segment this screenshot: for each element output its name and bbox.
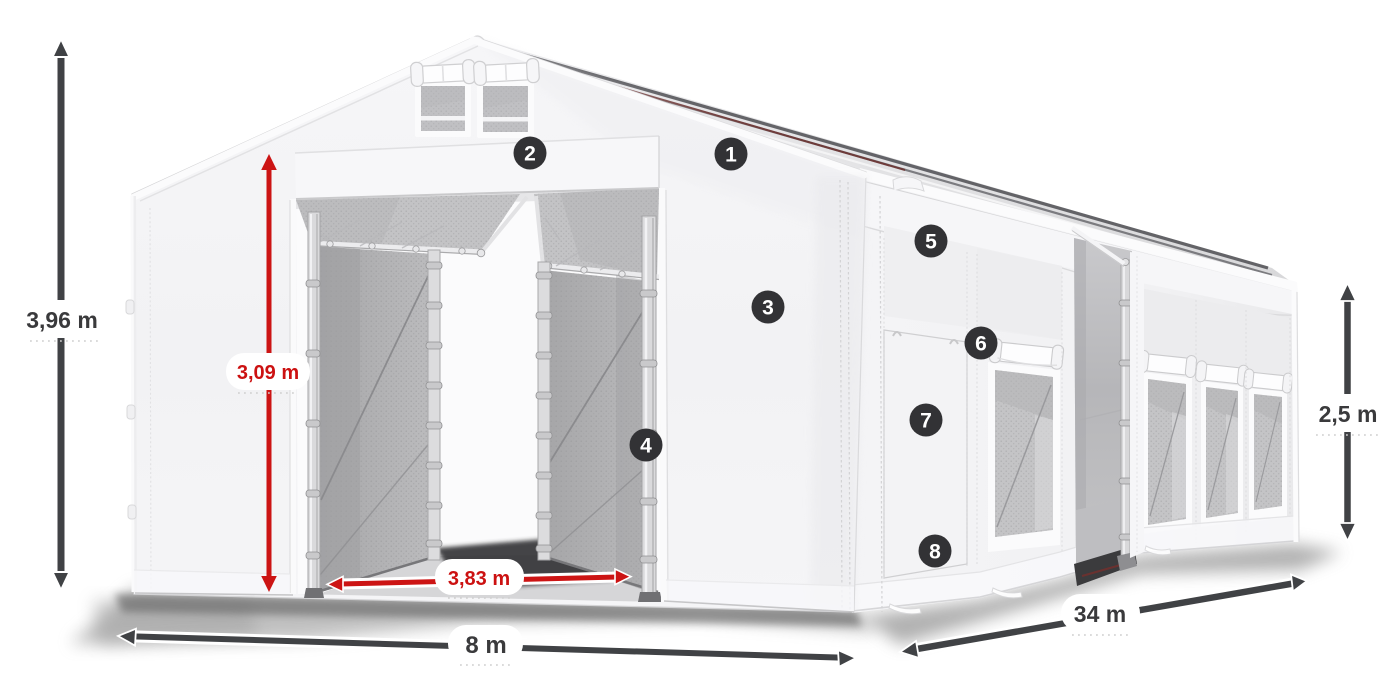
svg-text:7: 7 [920,410,932,433]
svg-text:8: 8 [929,541,941,564]
svg-text:2,5 m: 2,5 m [1319,401,1378,427]
svg-text:3,09 m: 3,09 m [237,362,299,384]
svg-text:34 m: 34 m [1074,601,1126,627]
svg-text:2: 2 [524,143,536,166]
svg-text:1: 1 [725,144,737,167]
svg-text:3: 3 [762,297,774,320]
svg-text:3,96 m: 3,96 m [26,307,98,333]
svg-text:5: 5 [925,231,937,254]
svg-text:3,83 m: 3,83 m [448,568,510,590]
svg-text:8 m: 8 m [465,632,506,659]
svg-text:4: 4 [640,435,652,458]
svg-text:6: 6 [975,333,987,356]
